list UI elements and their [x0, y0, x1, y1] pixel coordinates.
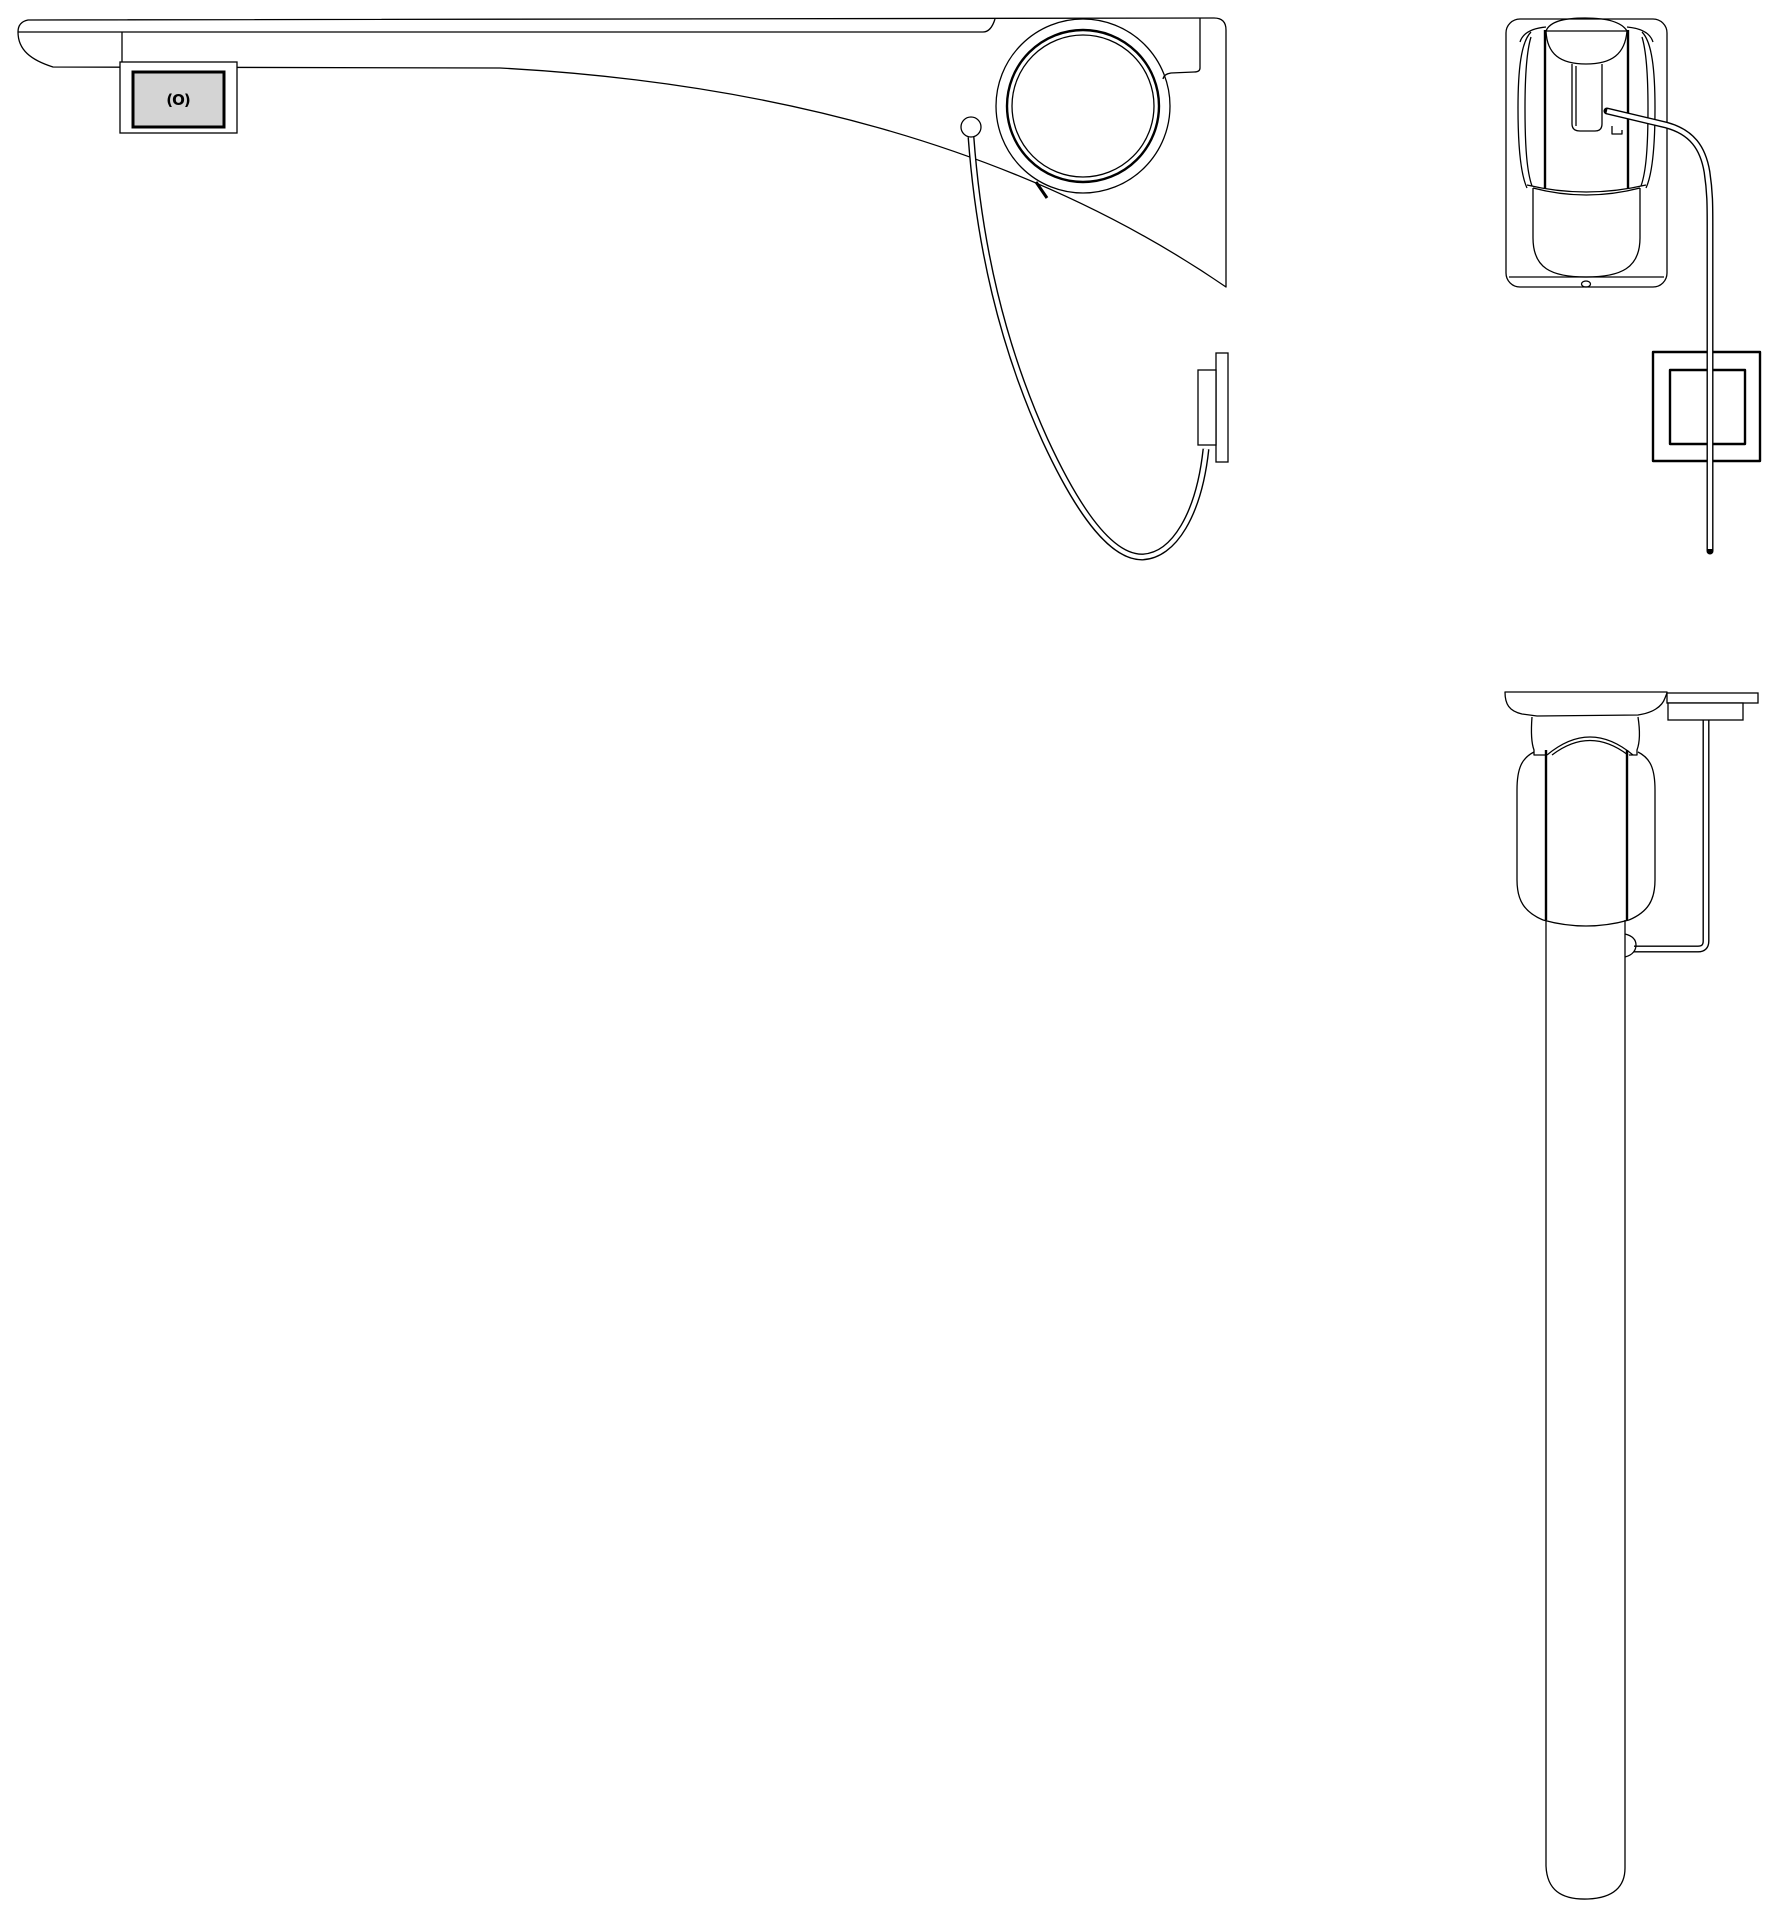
power-cable-front [1607, 111, 1710, 551]
three-view-technical-drawing: (O) [0, 0, 1778, 1920]
barrel-plan-bottom-arc [1543, 920, 1629, 926]
barrel-top-left-corner [1520, 27, 1546, 42]
cable-outlet-plan-plate [1667, 693, 1758, 703]
bracket-right-flange-inner [1641, 37, 1648, 186]
cable-clip [1612, 126, 1622, 134]
barrel-plan-left [1517, 752, 1543, 920]
power-cable-side [971, 137, 1206, 557]
collar-arc-outer [1547, 737, 1633, 755]
wall-plate-front [1506, 19, 1667, 287]
drawing-canvas: (O) [0, 0, 1778, 1920]
mounting-hub-middle-ring [1007, 30, 1159, 182]
plan-view [1505, 692, 1758, 1899]
spout-top-inner-line [18, 19, 995, 32]
lower-shroud [1533, 188, 1640, 277]
sensor-window: (O) [120, 62, 237, 133]
collar-arc-inner [1552, 741, 1628, 756]
arm-end-dome [1546, 18, 1627, 64]
barrel-top-right-corner [1627, 27, 1653, 42]
wall-plate-edge [1163, 18, 1200, 79]
spout-body-outline [18, 18, 1226, 287]
bracket-left-flange-inner [1525, 37, 1532, 186]
barrel-plan-right [1629, 752, 1655, 920]
sensor-icon: (O) [166, 91, 190, 109]
side-elevation-view: (O) [18, 18, 1228, 557]
cable-outlet-side-box [1198, 370, 1216, 445]
cable-outlet-plan-box [1668, 703, 1743, 720]
bracket-neck-left [1531, 717, 1547, 755]
front-elevation-view [1506, 18, 1760, 551]
mounting-hub-outer-ring [996, 19, 1170, 193]
mounting-hub-inner-ring [1012, 35, 1154, 177]
wall-plate-plan [1505, 692, 1667, 716]
cable-outlet-side-plate [1216, 353, 1228, 462]
screw-hole [1582, 281, 1591, 287]
spout-tube-plan [1546, 920, 1625, 1899]
power-cable-plan [1634, 719, 1706, 949]
bracket-neck-right [1629, 717, 1639, 755]
cable-anchor [961, 117, 981, 137]
